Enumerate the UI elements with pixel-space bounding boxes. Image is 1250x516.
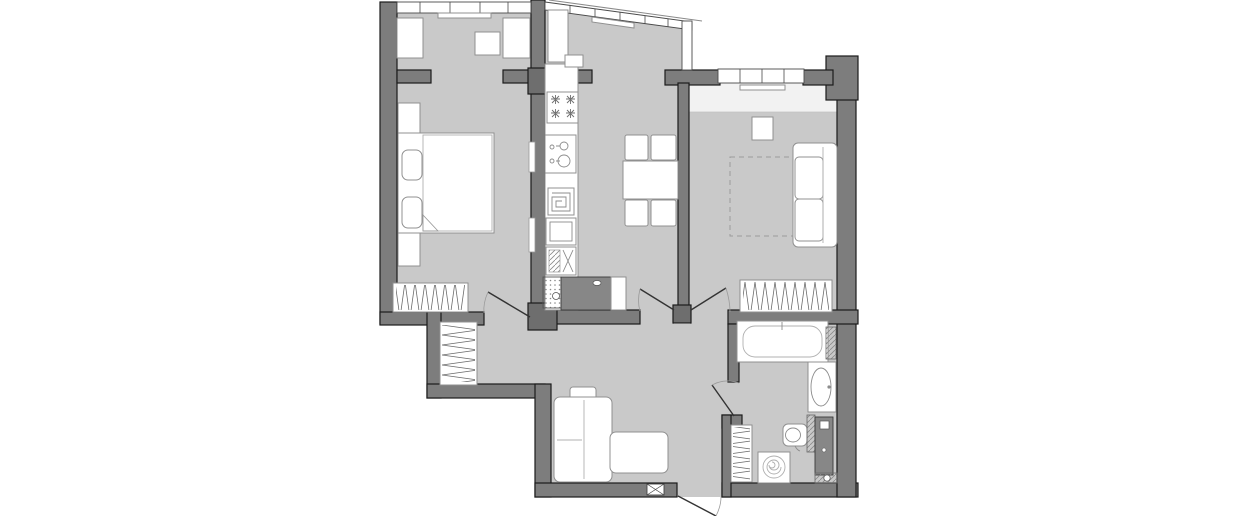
nightstand-bottom [398, 232, 420, 266]
bedroom-hanger-wardrobe [393, 283, 468, 312]
wall-radiator-upper [529, 142, 535, 172]
wall-stub-bedroom-right [503, 70, 531, 83]
plumbing-shaft [815, 417, 833, 475]
cabinet-step [565, 55, 583, 67]
washbasin [808, 362, 836, 412]
wall-living-header [665, 70, 720, 85]
pillow-top [402, 150, 422, 180]
wall-right [837, 60, 856, 497]
chair [625, 135, 648, 160]
spiral-appliance [548, 188, 574, 215]
entrance-door [678, 496, 721, 516]
wall-kitchen-living-divider [678, 83, 689, 318]
counter-peninsula [553, 277, 627, 310]
wall-divider-cap [673, 305, 691, 323]
chair [625, 200, 648, 226]
entrance-box-symbol [647, 484, 664, 495]
wall-kitchen-bottom [556, 310, 640, 324]
wall-stub-bedroom-left [397, 70, 431, 83]
tall-cabinet [548, 10, 568, 62]
wall-radiator-lower [529, 218, 535, 252]
wardrobe-unit-mid [475, 32, 500, 55]
wall-radiator-nook [722, 415, 731, 497]
duct-by-tub [826, 327, 836, 359]
hall-hanger-wardrobe [440, 322, 477, 385]
bedroom-window [397, 2, 531, 13]
dining-set [623, 135, 678, 226]
duct-strip [807, 415, 815, 452]
towel-radiator [731, 425, 752, 482]
wall-bedroom-left [380, 2, 397, 324]
entrance-doorway-floor [677, 483, 722, 497]
bathtub [737, 321, 828, 362]
wardrobe-unit-right [503, 18, 530, 58]
oven [546, 218, 576, 245]
vertical-glazing [682, 21, 692, 70]
floor-plan-svg [0, 0, 1250, 516]
wall-top-right-seg [803, 70, 833, 85]
living-doorway-floor [690, 310, 729, 324]
sofa [793, 143, 837, 247]
side-table [752, 117, 773, 140]
wall-entry-left [535, 384, 551, 497]
chair [651, 200, 676, 226]
washing-machine [758, 452, 790, 483]
bottom-duct [815, 473, 837, 483]
living-window [718, 69, 804, 83]
wall-hall-bottom [427, 384, 545, 398]
vent-shaft [543, 277, 561, 308]
pillow-bottom [402, 197, 422, 228]
kitchen-sink [545, 135, 576, 173]
living-hanger-wardrobe [740, 280, 832, 312]
wardrobe-unit-left [397, 18, 423, 58]
nightstand-top [398, 103, 420, 135]
kitchen-doorway-floor [640, 310, 674, 324]
dining-table [623, 161, 678, 199]
hob-4-burners [547, 92, 578, 123]
bedroom-curtain-rail [438, 13, 491, 18]
dishwasher [546, 247, 576, 275]
floor-plan-image [0, 0, 1250, 516]
chair [651, 135, 676, 160]
living-curtain-rail [740, 85, 785, 90]
